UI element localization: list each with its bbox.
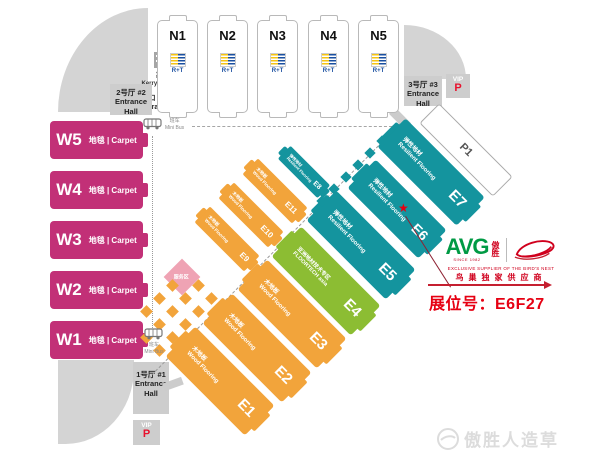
rt-blind-icon bbox=[170, 53, 186, 67]
orange-booth-diamond bbox=[166, 305, 179, 318]
watermark-logo-icon bbox=[436, 427, 460, 451]
shuttle-stop-south: 班车Mini Bus bbox=[144, 328, 164, 355]
hall-n2: N2 R+T bbox=[207, 20, 248, 113]
rt-logo: R+T bbox=[371, 53, 387, 74]
logo-divider bbox=[506, 238, 507, 262]
avg-brand-block: AVG SINCE 1982 傲胜 EXCLUSIVE SUPPLIER OF … bbox=[436, 236, 566, 283]
watermark: 傲胜人造草 bbox=[436, 426, 559, 451]
booth-star-icon: ★ bbox=[398, 202, 409, 214]
hall-n5: N5 R+T bbox=[358, 20, 399, 113]
rt-blind-icon bbox=[321, 53, 337, 67]
birds-nest-swoosh-icon bbox=[513, 236, 557, 263]
orange-booth-diamond bbox=[192, 305, 205, 318]
bus-icon bbox=[144, 328, 164, 340]
bus-icon bbox=[143, 118, 163, 130]
rt-logo: R+T bbox=[170, 53, 186, 74]
vip-parking-north: VIP P bbox=[446, 74, 470, 98]
avg-logo-text: AVG bbox=[445, 237, 488, 257]
hall-w5: W5地毯 | Carpet bbox=[50, 121, 143, 159]
rt-blind-icon bbox=[220, 53, 236, 67]
exhibition-floor-map: 嘉里酒店 Kerry Centre Hotel 北入口North Entranc… bbox=[0, 0, 600, 467]
entrance-hall-3: 3号厅 #3Entrance Hall bbox=[404, 76, 442, 106]
south-entrance-area: 南入口South Entrance bbox=[58, 360, 134, 444]
orange-booth-diamond bbox=[153, 292, 166, 305]
booth-arrow bbox=[428, 284, 546, 286]
avg-since: SINCE 1982 bbox=[453, 257, 480, 262]
rt-logo: R+T bbox=[220, 53, 236, 74]
service-area-diamond: 服务区 bbox=[164, 259, 201, 296]
rt-blind-icon bbox=[270, 53, 286, 67]
shuttle-stop-north: 班车Mini Bus bbox=[143, 118, 184, 131]
hall-n4: N4 R+T bbox=[308, 20, 349, 113]
hall-w3: W3地毯 | Carpet bbox=[50, 221, 143, 259]
orange-booth-diamond bbox=[179, 318, 192, 331]
watermark-text: 傲胜人造草 bbox=[464, 426, 559, 451]
hall-n3: N3 R+T bbox=[257, 20, 298, 113]
rt-logo: R+T bbox=[270, 53, 286, 74]
rt-logo: R+T bbox=[321, 53, 337, 74]
hall-n1: N1 R+T bbox=[157, 20, 198, 113]
shuttle-route-top bbox=[192, 126, 392, 127]
avg-chinese-name: 傲胜 bbox=[492, 242, 500, 258]
hall-w2: W2地毯 | Carpet bbox=[50, 271, 143, 309]
east-entrance-area: 东入口East Entrance bbox=[404, 25, 466, 79]
parking-icon: P bbox=[446, 83, 470, 93]
orange-booth-diamond bbox=[205, 292, 218, 305]
vip-parking-south: VIP P bbox=[133, 420, 160, 445]
avg-tagline-en: EXCLUSIVE SUPPLIER OF THE BIRD'S NEST bbox=[436, 266, 566, 271]
parking-icon: P bbox=[133, 429, 160, 439]
hall-w1: W1地毯 | Carpet bbox=[50, 321, 143, 359]
entrance-hall-2: 2号厅 #2Entrance Hall bbox=[110, 84, 152, 115]
hall-w4: W4地毯 | Carpet bbox=[50, 171, 143, 209]
rt-blind-icon bbox=[371, 53, 387, 67]
booth-number: 展位号：E6F27 bbox=[429, 290, 545, 314]
